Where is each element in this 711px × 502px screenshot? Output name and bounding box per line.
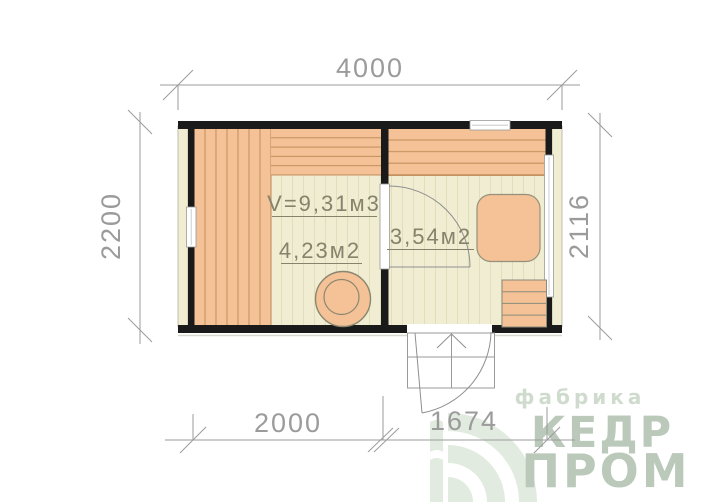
floor-plan-drawing: фабрика КЕДР ПРОМ bbox=[0, 0, 711, 502]
steam-room-volume-label: V=9,31м3 bbox=[267, 191, 381, 216]
washroom-bench-planks bbox=[389, 129, 547, 176]
interior-door-leaf bbox=[380, 184, 390, 269]
porch bbox=[408, 333, 495, 388]
dimension-left: 2200 bbox=[96, 110, 152, 344]
dimension-bottom-left-label: 2000 bbox=[254, 408, 322, 438]
washroom-area-label: 3,54м2 bbox=[390, 224, 472, 249]
logo-tagline: фабрика bbox=[515, 385, 646, 409]
logo-arc-1 bbox=[448, 477, 473, 502]
window-left-wall bbox=[187, 207, 197, 247]
kedrprom-logo: фабрика КЕДР ПРОМ bbox=[430, 385, 691, 502]
steam-room-top-bench-planks bbox=[271, 129, 381, 175]
entrance bbox=[407, 324, 495, 413]
dimension-right: 2116 bbox=[564, 113, 612, 340]
dimension-left-label: 2200 bbox=[96, 192, 126, 260]
dimension-bottom-right-label: 1674 bbox=[430, 406, 498, 436]
window-top-wall bbox=[470, 121, 510, 131]
logo-brand-line2: ПРОМ bbox=[521, 444, 690, 498]
logo-bar-2 bbox=[430, 458, 443, 502]
washroom-steps bbox=[502, 280, 547, 327]
dimension-right-label: 2116 bbox=[564, 193, 594, 259]
dimension-top: 4000 bbox=[160, 53, 580, 110]
window-right-wall bbox=[545, 155, 554, 297]
steam-room-side-bench-planks bbox=[195, 129, 272, 325]
steam-room-area-label: 4,23м2 bbox=[279, 238, 361, 263]
washroom-table bbox=[477, 195, 540, 262]
floor-plan-page: фабрика КЕДР ПРОМ bbox=[0, 0, 711, 502]
dimension-top-label: 4000 bbox=[336, 53, 404, 83]
